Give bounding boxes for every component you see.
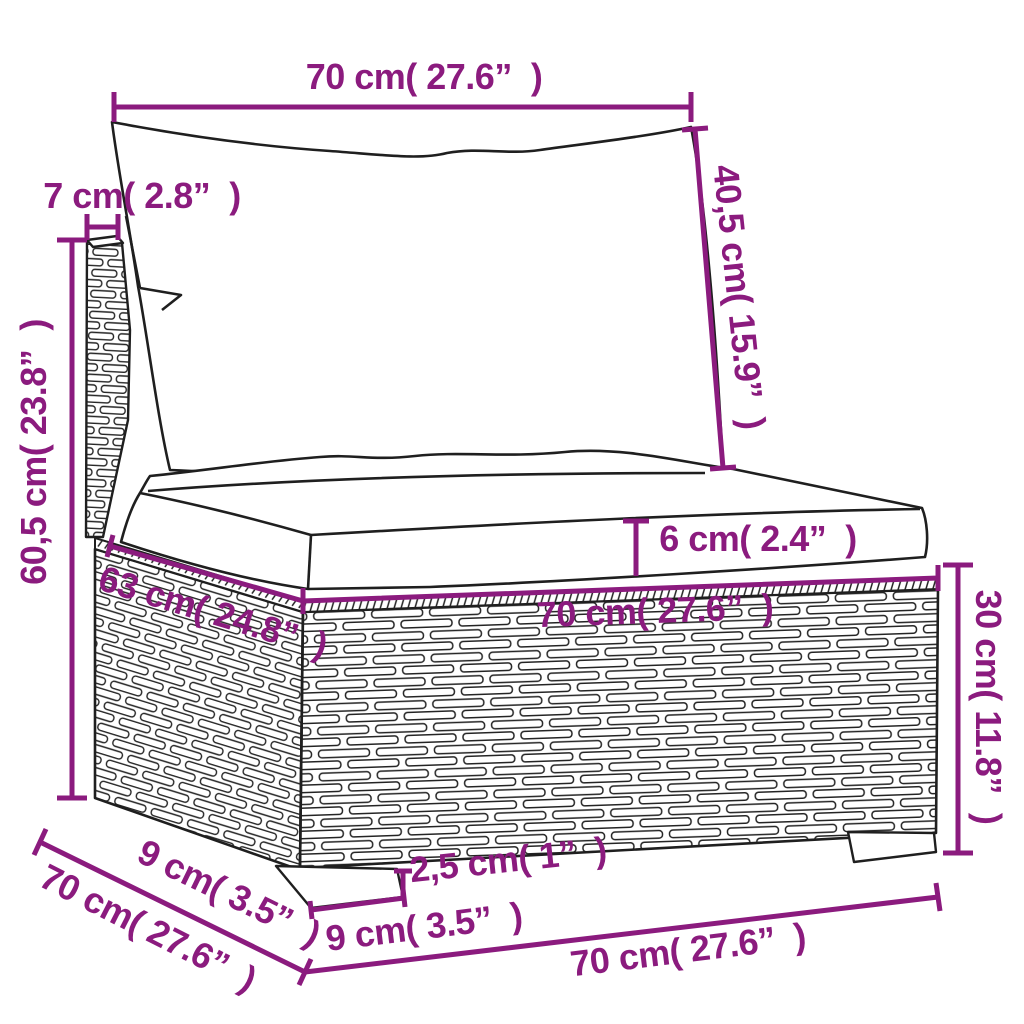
armrest-column (86, 236, 130, 537)
dim-label-seat-cushion-thickness: 6 cm( 2.4” ) (659, 521, 857, 557)
dim-label-back-cushion-width: 70 cm( 27.6” ) (306, 59, 543, 95)
dim-label-base-height: 30 cm( 11.8” ) (970, 590, 1006, 825)
dim-label-total-height: 60,5 cm( 23.8” ) (16, 319, 52, 585)
dim-label-seat-width: 70 cm( 27.6” ) (536, 589, 774, 633)
dimension-diagram: 70 cm( 27.6” ) 7 cm( 2.8” ) 40,5 cm( 15.… (0, 0, 1024, 1024)
dim-label-arm-thickness: 7 cm( 2.8” ) (43, 178, 241, 214)
rattan-base (95, 538, 938, 870)
